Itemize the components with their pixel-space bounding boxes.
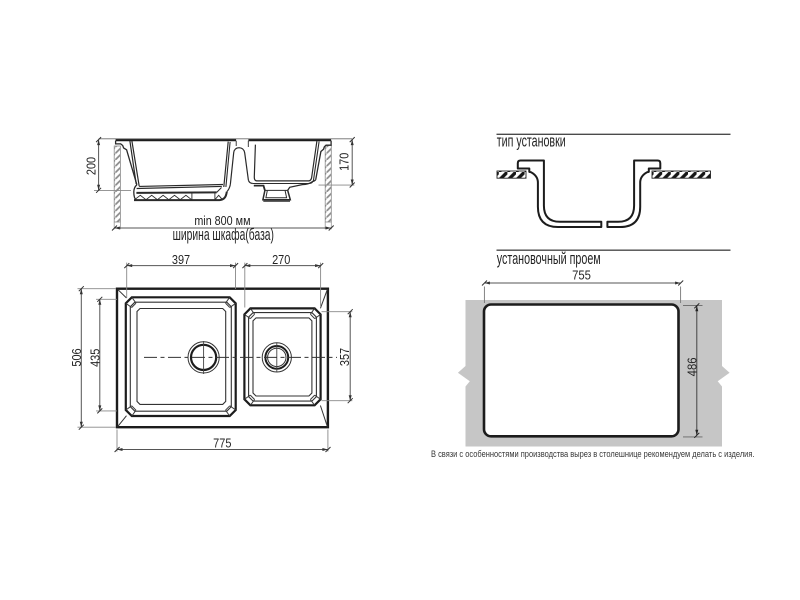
svg-text:170: 170	[337, 152, 352, 171]
svg-text:755: 755	[572, 268, 591, 283]
svg-text:установочный проем: установочный проем	[497, 248, 601, 267]
svg-text:486: 486	[685, 357, 700, 376]
svg-text:397: 397	[172, 252, 190, 267]
svg-text:ширина шкафа(база): ширина шкафа(база)	[173, 226, 274, 244]
svg-text:тип установки: тип установки	[497, 131, 566, 150]
svg-text:357: 357	[337, 348, 352, 366]
svg-text:270: 270	[272, 252, 291, 267]
svg-text:435: 435	[88, 348, 103, 367]
svg-text:506: 506	[69, 348, 84, 367]
svg-text:775: 775	[213, 436, 232, 451]
svg-text:В связи с особенностями произв: В связи с особенностями производства выр…	[431, 449, 755, 459]
svg-text:200: 200	[84, 156, 99, 175]
